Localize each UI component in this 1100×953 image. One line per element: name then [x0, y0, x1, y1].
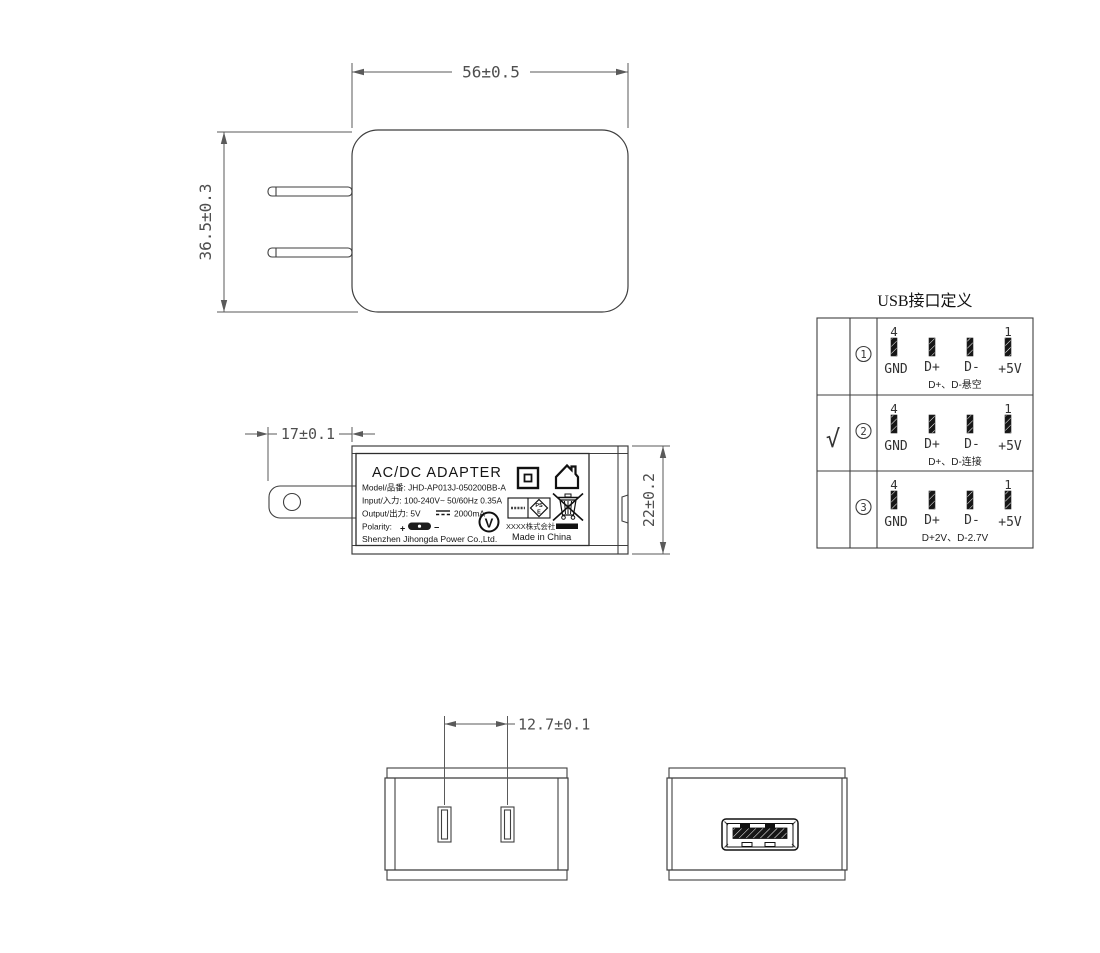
- label-input-line: Input/入力: 100-240V~ 50/60Hz 0.35A: [362, 496, 502, 506]
- pin-dplus: [929, 491, 935, 509]
- svg-text:GND: GND: [884, 515, 908, 530]
- svg-text:D+: D+: [924, 360, 940, 375]
- plug-prong-side: [269, 486, 356, 518]
- usb-tongue: [733, 828, 787, 839]
- pin-gnd: [891, 491, 897, 509]
- prong-slot-right: [501, 807, 514, 842]
- pin-5v: [1005, 338, 1011, 356]
- usb-shell-tab: [765, 843, 775, 847]
- plug-prong-upper: [268, 187, 352, 196]
- dimension-body-width-text: 56±0.5: [462, 63, 520, 82]
- dimension-body-height-text: 36.5±0.3: [196, 183, 215, 260]
- dimension-body-depth-text: 22±0.2: [640, 473, 658, 527]
- polarity-plus-sign: +: [400, 524, 405, 534]
- svg-text:1: 1: [1004, 401, 1012, 416]
- label-company: Shenzhen Jihongda Power Co.,Ltd.: [362, 534, 497, 544]
- top-view: 56±0.5 36.5±0.3: [196, 63, 628, 313]
- svg-text:+5V: +5V: [998, 515, 1022, 530]
- dimension-pin-pitch-text: 12.7±0.1: [518, 716, 590, 734]
- svg-text:D+: D+: [924, 513, 940, 528]
- row1-caption: D+、D-悬空: [928, 378, 982, 391]
- adapter-body-outline: [352, 130, 628, 312]
- svg-text:3: 3: [860, 502, 866, 514]
- svg-text:2: 2: [860, 426, 866, 438]
- usb-pinout-table: USB接口定义 1 4 1 GND D+ D- +5V D+、D-悬空 √ 2: [817, 292, 1033, 548]
- usb-shell-tab: [742, 843, 752, 847]
- svg-text:D+: D+: [924, 437, 940, 452]
- plug-prong-lower: [268, 248, 352, 257]
- pin-dplus: [929, 415, 935, 433]
- front-view: 17±0.1 22±0.2 AC/DC ADAPTER Model/品番: JH…: [245, 425, 670, 554]
- svg-text:PS: PS: [535, 503, 543, 509]
- svg-text:4: 4: [890, 324, 898, 339]
- svg-text:+5V: +5V: [998, 362, 1022, 377]
- bottom-view-usb-face: [667, 768, 847, 880]
- dimension-body-width: 56±0.5: [352, 63, 628, 129]
- row2-caption: D+、D-连接: [928, 455, 982, 468]
- prong-hole: [284, 494, 301, 511]
- prong-slot-left: [438, 807, 451, 842]
- pin-dplus: [929, 338, 935, 356]
- pin-5v: [1005, 415, 1011, 433]
- label-output-line: Output/出力: 5V: [362, 509, 421, 519]
- svg-text:4: 4: [890, 401, 898, 416]
- dimension-prong-length-text: 17±0.1: [281, 425, 335, 443]
- svg-text:1: 1: [1004, 477, 1012, 492]
- usb-contact-tab: [740, 824, 750, 829]
- weee-bar: [556, 524, 578, 530]
- usb-side-notch: [622, 495, 628, 523]
- pin-5v: [1005, 491, 1011, 509]
- pin-gnd: [891, 338, 897, 356]
- svg-text:GND: GND: [884, 362, 908, 377]
- svg-text:GND: GND: [884, 439, 908, 454]
- pin-dminus: [967, 415, 973, 433]
- label-cert-company: XXXX株式会社: [506, 522, 556, 531]
- svg-text:E: E: [537, 510, 541, 516]
- usb-contact-tab: [765, 824, 775, 829]
- svg-text:1: 1: [860, 349, 866, 361]
- usb-table-row-1: 1 4 1 GND D+ D- +5V D+、D-悬空: [856, 324, 1022, 391]
- bottom-view-plug-face: 12.7±0.1: [385, 716, 590, 881]
- usb-table-title: USB接口定义: [877, 292, 972, 310]
- usb-port-icon: [722, 819, 798, 850]
- polarity-minus-sign: −: [434, 523, 439, 533]
- svg-text:V: V: [485, 516, 494, 531]
- svg-text:D-: D-: [964, 437, 980, 452]
- label-polarity: Polarity:: [362, 522, 392, 532]
- technical-drawing-canvas: 56±0.5 36.5±0.3: [0, 0, 1100, 953]
- pin-gnd: [891, 415, 897, 433]
- label-model-line: Model/品番: JHD-AP013J-050200BB-A: [362, 483, 506, 493]
- svg-text:D-: D-: [964, 360, 980, 375]
- row2-check: √: [826, 425, 840, 453]
- usb-table-row-3: 3 4 1 GND D+ D- +5V D+2V、D-2.7V: [856, 477, 1022, 544]
- svg-text:1: 1: [1004, 324, 1012, 339]
- polarity-symbol-icon: [408, 523, 431, 531]
- svg-text:+5V: +5V: [998, 439, 1022, 454]
- dimension-body-height: 36.5±0.3: [196, 132, 358, 312]
- dimension-body-depth: 22±0.2: [632, 446, 670, 554]
- svg-text:D-: D-: [964, 513, 980, 528]
- usb-table-row-2: √ 2 4 1 GND D+ D- +5V D+、D-连接: [826, 401, 1022, 468]
- row3-caption: D+2V、D-2.7V: [922, 533, 989, 544]
- svg-text:4: 4: [890, 477, 898, 492]
- label-title: AC/DC ADAPTER: [372, 465, 502, 481]
- product-label: AC/DC ADAPTER Model/品番: JHD-AP013J-05020…: [356, 454, 589, 546]
- label-made-in: Made in China: [512, 532, 572, 542]
- pin-dminus: [967, 338, 973, 356]
- pin-dminus: [967, 491, 973, 509]
